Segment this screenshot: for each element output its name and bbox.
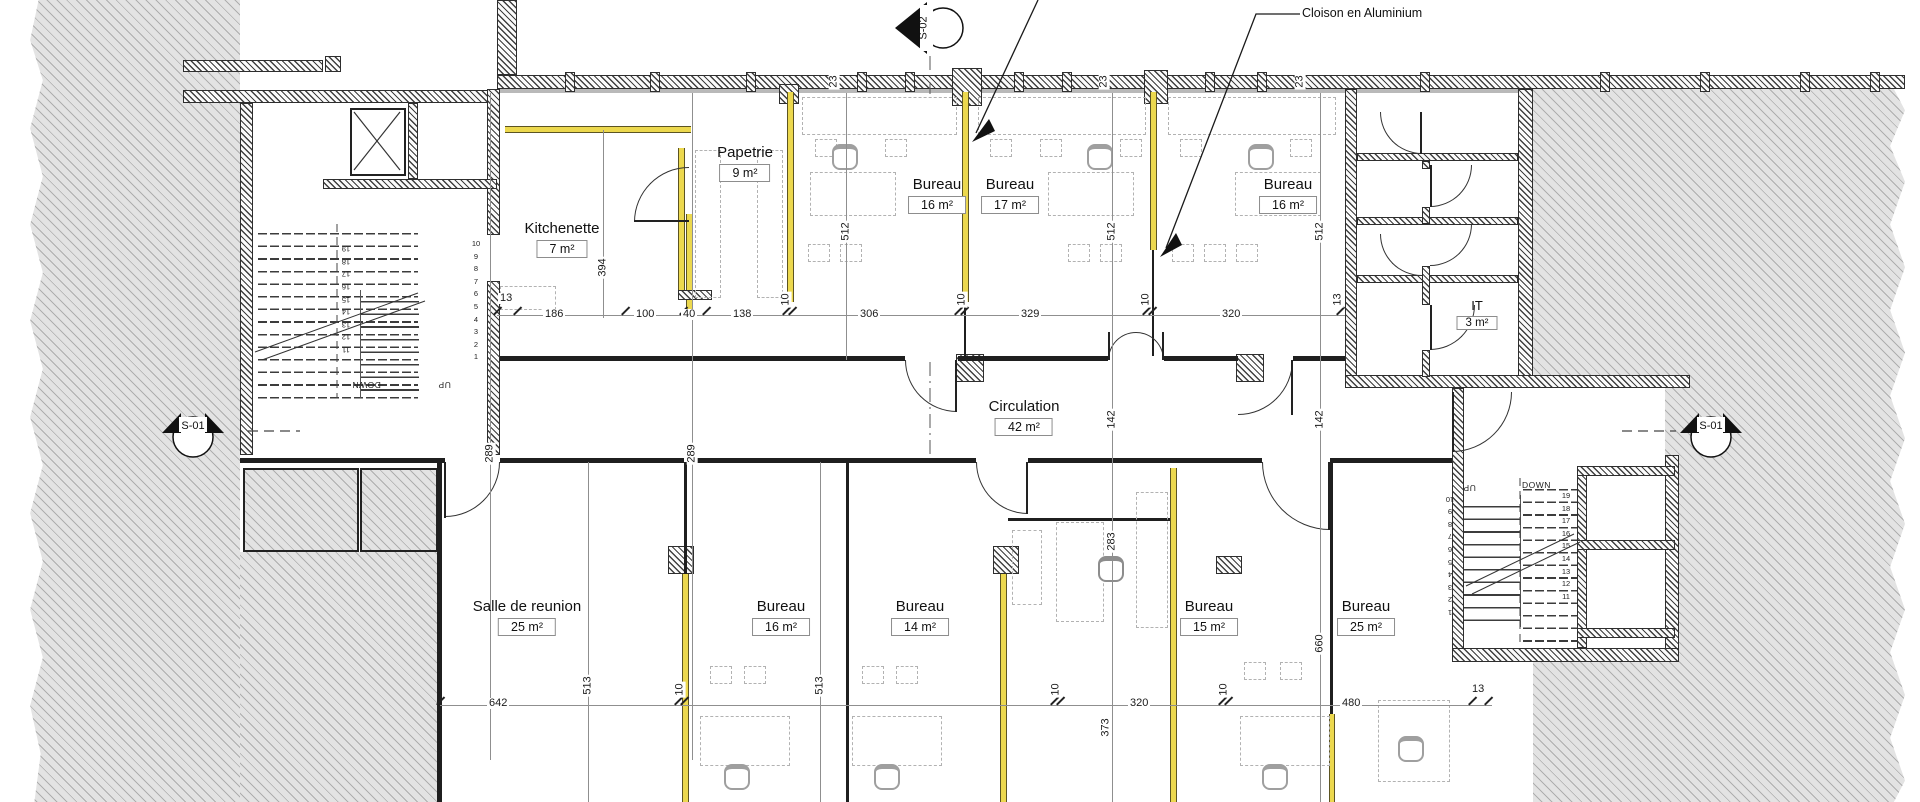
room-name: Bureau — [1259, 176, 1317, 193]
room-label-bureau-b4: Bureau 25 m² — [1337, 598, 1395, 636]
room-name: Bureau — [891, 598, 949, 615]
dimension-line — [603, 130, 604, 318]
door-arc — [445, 462, 500, 517]
floor-plan: 10 9 8 7 6 5 4 3 2 1 11 12 13 14 15 16 1… — [0, 0, 1920, 802]
annotation-cloison: Cloison en Aluminium — [1302, 6, 1422, 20]
wall — [1028, 458, 1262, 463]
dimension-line — [490, 93, 491, 760]
wall — [1330, 458, 1452, 463]
door-arc — [1380, 112, 1422, 154]
dimension: 306 — [858, 309, 880, 320]
door-arc — [634, 167, 689, 222]
room-name: Salle de reunion — [473, 598, 581, 615]
column — [1014, 72, 1024, 92]
column — [1257, 72, 1267, 92]
room-name: IT — [1457, 298, 1498, 313]
dimension-line — [820, 462, 821, 802]
office-chair — [724, 764, 750, 790]
door-arc — [1136, 332, 1164, 360]
chair — [1180, 139, 1202, 157]
desk — [852, 716, 942, 766]
desk — [1168, 97, 1336, 135]
door-leaf — [634, 220, 689, 222]
door-arc — [1238, 360, 1293, 415]
dimension: 10 — [675, 681, 686, 697]
wall — [487, 281, 500, 455]
door-leaf — [1430, 305, 1432, 350]
table — [810, 172, 896, 216]
wall — [690, 458, 976, 463]
wall — [1293, 356, 1345, 361]
column — [1600, 72, 1610, 92]
door-arc — [976, 462, 1028, 514]
wall — [1577, 540, 1675, 550]
room-name: Papetrie — [717, 144, 773, 161]
dim-tick — [621, 306, 630, 315]
dimension: 320 — [1128, 698, 1150, 709]
dimension: 23 — [1295, 73, 1306, 89]
door-arc — [1430, 165, 1472, 207]
dimension: 186 — [543, 309, 565, 320]
room-label-kitchenette: Kitchenette 7 m² — [524, 220, 599, 258]
dim-tick — [1468, 696, 1477, 705]
wall — [1452, 648, 1679, 662]
office-chair — [1248, 144, 1274, 170]
hatch-region — [28, 0, 240, 802]
room-area: 9 m² — [720, 164, 771, 182]
door-leaf — [1108, 332, 1110, 360]
stair-treads — [1464, 495, 1521, 627]
dimension: 10 — [1219, 681, 1230, 697]
shaft — [1587, 552, 1665, 626]
desk — [1012, 530, 1042, 605]
wall — [408, 103, 418, 179]
dimension-line — [588, 462, 589, 802]
chair — [808, 244, 830, 262]
door-leaf — [1430, 165, 1432, 207]
desk — [700, 716, 790, 766]
chair — [1244, 662, 1266, 680]
office-chair — [832, 144, 858, 170]
stair-up-label: UP — [438, 380, 451, 390]
wall — [497, 0, 517, 75]
room-area: 15 m² — [1180, 618, 1238, 636]
dimension: 142 — [1315, 408, 1326, 430]
dimension: 289 — [687, 442, 698, 464]
wall — [684, 462, 687, 574]
wall — [487, 89, 500, 235]
wall — [1345, 375, 1690, 388]
office-chair — [874, 764, 900, 790]
dimension: 10 — [1051, 681, 1062, 697]
aluminium-partition — [1170, 468, 1177, 802]
room-label-bureau-t2: Bureau 17 m² — [981, 176, 1039, 214]
stair-numbers: 19 18 17 16 15 14 13 12 11 — [1560, 490, 1572, 603]
dimension-line — [692, 93, 693, 760]
wall — [500, 356, 905, 361]
column — [1700, 72, 1710, 92]
column — [857, 72, 867, 92]
wall — [1422, 207, 1430, 224]
chair — [840, 244, 862, 262]
room-area: 16 m² — [752, 618, 810, 636]
dimension: 13 — [498, 293, 514, 304]
room-name: Kitchenette — [524, 220, 599, 237]
dimension: 10 — [781, 291, 792, 307]
room-area: 25 m² — [498, 618, 556, 636]
door-leaf — [1291, 360, 1293, 415]
office-chair — [1398, 736, 1424, 762]
column — [1420, 72, 1430, 92]
column — [325, 56, 341, 72]
wall — [1422, 350, 1430, 377]
wall — [1345, 89, 1357, 388]
dimension: 10 — [957, 291, 968, 307]
dimension: 480 — [1340, 698, 1362, 709]
column — [1205, 72, 1215, 92]
wall — [437, 462, 442, 802]
shaft — [1587, 478, 1665, 538]
shaft — [243, 468, 359, 552]
room-name: Bureau — [908, 176, 966, 193]
wall — [1577, 628, 1675, 638]
dimension: 512 — [841, 220, 852, 242]
chair — [896, 666, 918, 684]
room-label-bureau-b3: Bureau 15 m² — [1180, 598, 1238, 636]
chair — [885, 139, 907, 157]
wall — [183, 60, 323, 72]
dimension: 142 — [1107, 408, 1118, 430]
dimension: 512 — [1315, 220, 1326, 242]
stair-numbers: 10 9 8 7 6 5 4 3 2 1 — [470, 238, 482, 364]
wall — [497, 75, 1905, 89]
room-area: 3 m² — [1457, 316, 1498, 330]
chair — [1068, 244, 1090, 262]
chair — [1040, 139, 1062, 157]
wall — [240, 458, 445, 463]
room-label-salle: Salle de reunion 25 m² — [473, 598, 581, 636]
dimension: 13 — [1470, 684, 1486, 695]
room-area: 7 m² — [537, 240, 588, 258]
shaft — [360, 468, 438, 552]
wall — [1422, 266, 1430, 305]
room-name: Bureau — [752, 598, 810, 615]
room-name: Circulation — [989, 398, 1060, 415]
dimension: 642 — [487, 698, 509, 709]
dimension: 23 — [829, 73, 840, 89]
column — [1216, 556, 1242, 574]
dimension: 138 — [731, 309, 753, 320]
column — [1870, 72, 1880, 92]
column — [650, 72, 660, 92]
wall — [1518, 89, 1533, 388]
wall — [1422, 161, 1430, 169]
chair — [1100, 244, 1122, 262]
wall — [1164, 356, 1238, 361]
dimension: 660 — [1315, 632, 1326, 654]
wall — [846, 462, 849, 802]
room-label-bureau-t1: Bureau 16 m² — [908, 176, 966, 214]
dim-tick — [1336, 306, 1345, 315]
office-chair — [1087, 144, 1113, 170]
column — [905, 72, 915, 92]
column — [1800, 72, 1810, 92]
chair — [862, 666, 884, 684]
room-area: 17 m² — [981, 196, 1039, 214]
column — [668, 546, 694, 574]
dimension: 40 — [681, 309, 697, 320]
dimension: 373 — [1101, 716, 1112, 738]
room-label-circulation: Circulation 42 m² — [989, 398, 1060, 436]
dimension: 329 — [1019, 309, 1041, 320]
dimension: 23 — [1099, 73, 1110, 89]
wall — [323, 179, 497, 189]
aluminium-partition — [1000, 574, 1007, 802]
section-marker-s02: S-02 — [893, 0, 965, 60]
stair-numbers: 11 12 13 14 15 16 17 18 19 — [340, 242, 352, 355]
column — [565, 72, 575, 92]
door-arc — [905, 360, 957, 412]
dimension: 100 — [634, 309, 656, 320]
dimension: 283 — [1107, 530, 1118, 552]
stair-numbers: 1 2 3 4 5 6 7 8 9 10 — [1444, 492, 1456, 618]
chair — [1172, 244, 1194, 262]
dimension: 13 — [1333, 291, 1344, 307]
room-area: 16 m² — [908, 196, 966, 214]
table — [1048, 172, 1134, 216]
wall — [958, 356, 1108, 361]
wall — [1577, 466, 1675, 476]
door-leaf — [444, 462, 446, 518]
wall — [1577, 466, 1587, 648]
room-name: Bureau — [1337, 598, 1395, 615]
dimension-line — [440, 705, 1492, 706]
desk — [978, 97, 1146, 135]
stair-down-label: DOWN — [1522, 480, 1551, 490]
dimension: 513 — [583, 674, 594, 696]
wall — [240, 103, 253, 455]
wall — [1357, 153, 1518, 161]
room-area: 25 m² — [1337, 618, 1395, 636]
column — [746, 72, 756, 92]
room-label-papetrie: Papetrie 9 m² — [717, 144, 773, 182]
elevator-shaft — [350, 108, 406, 176]
chair — [1236, 244, 1258, 262]
chair — [1120, 139, 1142, 157]
door-arc — [1380, 234, 1422, 276]
door-arc — [1430, 224, 1472, 266]
door-leaf — [1452, 392, 1454, 452]
room-label-it: IT 3 m² — [1457, 298, 1498, 331]
door-leaf — [1026, 462, 1028, 514]
dimension-line — [1320, 93, 1321, 802]
desk — [1240, 716, 1330, 766]
desk — [802, 97, 957, 135]
room-label-bureau-b2: Bureau 14 m² — [891, 598, 949, 636]
dim-tick — [1484, 696, 1493, 705]
room-name: Bureau — [981, 176, 1039, 193]
chair — [744, 666, 766, 684]
room-area: 42 m² — [995, 418, 1053, 436]
shelving — [1136, 492, 1168, 628]
chair — [1290, 139, 1312, 157]
aluminium-partition — [1150, 92, 1157, 250]
aluminium-partition — [505, 126, 691, 133]
desk — [1056, 522, 1104, 622]
room-area: 16 m² — [1259, 196, 1317, 214]
dimension: 394 — [598, 256, 609, 278]
aluminium-partition — [787, 92, 794, 302]
dimension: 289 — [485, 442, 496, 464]
dimension: 512 — [1107, 220, 1118, 242]
dimension-line — [1112, 93, 1113, 802]
room-label-bureau-b1: Bureau 16 m² — [752, 598, 810, 636]
room-area: 14 m² — [891, 618, 949, 636]
dim-tick — [702, 306, 711, 315]
dimension: 513 — [815, 674, 826, 696]
chair — [990, 139, 1012, 157]
office-chair — [1262, 764, 1288, 790]
office-chair — [1098, 556, 1124, 582]
door-leaf — [1162, 332, 1164, 360]
door-leaf — [1420, 112, 1422, 154]
chair — [1280, 662, 1302, 680]
wall — [500, 458, 684, 463]
dimension-line — [497, 315, 1345, 316]
chair — [1204, 244, 1226, 262]
door-leaf — [1328, 462, 1330, 530]
stair-down-label: DOWN — [352, 380, 381, 390]
column — [1062, 72, 1072, 92]
stair-up-label: UP — [1463, 483, 1476, 493]
hatch-region — [240, 552, 437, 802]
chair — [710, 666, 732, 684]
door-leaf — [955, 360, 957, 412]
wall — [183, 90, 497, 103]
dimension: 320 — [1220, 309, 1242, 320]
room-name: Bureau — [1180, 598, 1238, 615]
room-label-bureau-t3: Bureau 16 m² — [1259, 176, 1317, 214]
dimension: 10 — [1141, 291, 1152, 307]
section-marker-label: S-02 — [918, 16, 930, 39]
wall — [1357, 275, 1518, 283]
